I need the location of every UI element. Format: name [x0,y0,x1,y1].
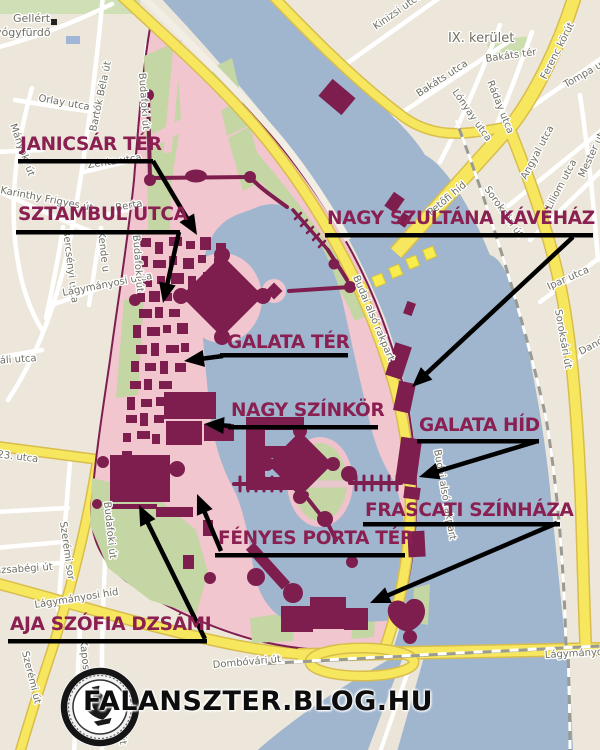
annotation-underline [16,230,180,235]
annotation-underline [417,439,539,444]
annotation-underline [18,159,153,164]
map-image: GellértgyógyfürdőOrlay utcaBartók Béla ú… [0,0,600,750]
annotation-frascati-szinhaza: FRASCATI SZÍNHÁZA [365,502,573,521]
watermark-text: FALANSZTER.BLOG.HU [83,686,433,717]
annotation-sztambul-utca: SZTAMBUL UTCA [18,206,188,225]
annotation-galata-hid: GALATA HÍD [419,417,540,436]
poi-marker [51,19,57,25]
annotation-underline [8,639,207,644]
annotation-underline [228,425,378,430]
annotation-underline [325,233,593,238]
annotation-underline [363,522,560,527]
street-label: gyógyfürdő [0,26,51,39]
annotation-janicsar-ter: JANICSÁR TÉR [20,136,162,155]
annotation-underline [220,353,348,358]
annotation-nagy-szinkor: NAGY SZÍNKÖR [231,402,384,421]
annotation-underline [215,553,405,558]
map-canvas: GellértgyógyfürdőOrlay utcaBartók Béla ú… [0,0,600,750]
annotation-nagy-szultana-kavehaz: NAGY SZULTÁNA KÁVÉHÁZ [327,210,595,229]
annotation-fenyes-porta-ter: FÉNYES PORTA TÉR [218,530,414,549]
annotation-aja-szofia-dzsami: AJA SZÓFIA DZSÁMI [10,616,211,635]
gellert-bath-pool [66,36,80,44]
annotation-galata-ter: GALATA TÉR [227,334,350,353]
street-label: IX. kerület [448,31,514,46]
street-label: Gellért [13,12,51,25]
